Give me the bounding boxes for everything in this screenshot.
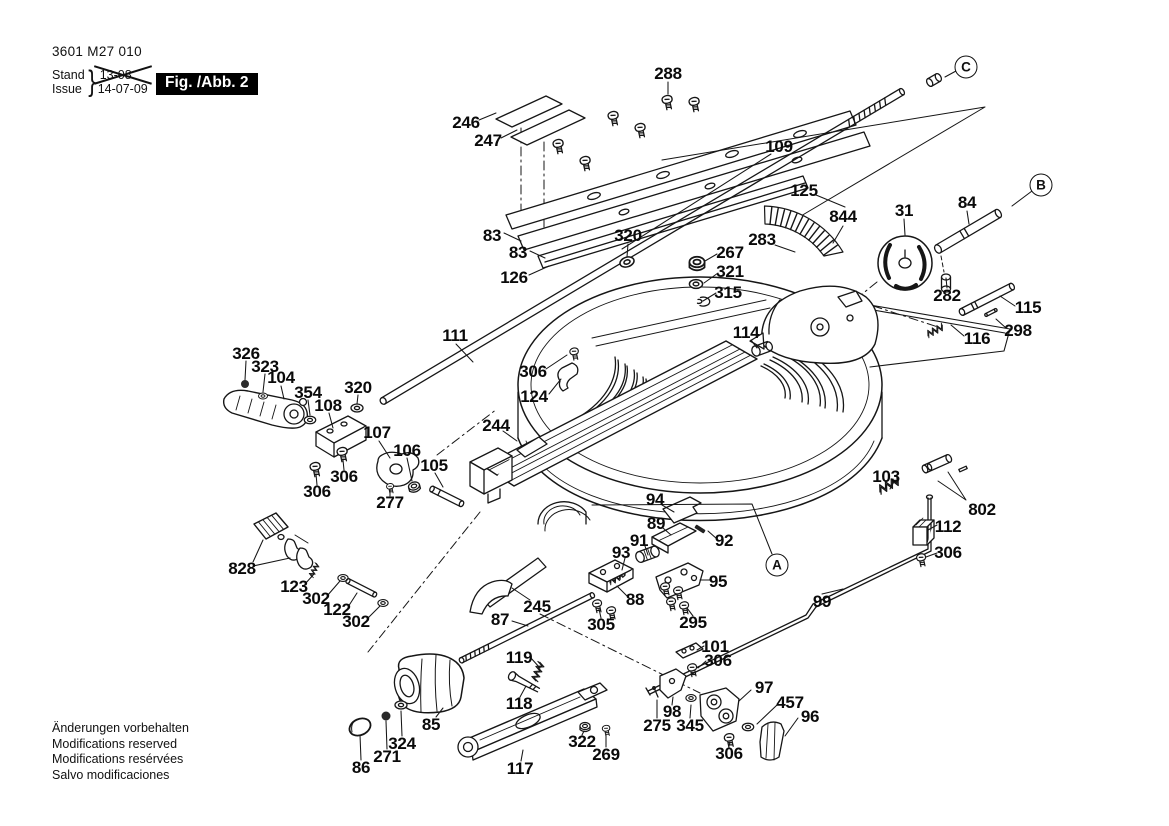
callout-89: 89 [647, 514, 665, 534]
callout-126: 126 [500, 268, 527, 288]
callout-320: 320 [344, 378, 371, 398]
callout-106: 106 [393, 441, 420, 461]
ref-marker-A: A [766, 554, 789, 577]
callout-277: 277 [376, 493, 403, 513]
callout-283: 283 [748, 230, 775, 250]
callout-94: 94 [646, 490, 664, 510]
callout-105: 105 [420, 456, 447, 476]
callout-92: 92 [715, 531, 733, 551]
callout-layer: 2882462471098383126320125844283267321315… [0, 0, 1169, 826]
callout-119: 119 [506, 648, 533, 668]
callout-117: 117 [507, 759, 534, 779]
callout-246: 246 [452, 113, 479, 133]
callout-271: 271 [373, 747, 400, 767]
callout-118: 118 [506, 694, 533, 714]
callout-345: 345 [676, 716, 703, 736]
callout-95: 95 [709, 572, 727, 592]
callout-245: 245 [523, 597, 550, 617]
callout-802: 802 [968, 500, 995, 520]
parts-diagram-page: 3601 M27 010 Stand Issue } 13-08 14-07-0… [0, 0, 1169, 826]
callout-247: 247 [474, 131, 501, 151]
callout-83: 83 [509, 243, 527, 263]
callout-86: 86 [352, 758, 370, 778]
callout-302: 302 [342, 612, 369, 632]
callout-844: 844 [829, 207, 856, 227]
callout-116: 116 [964, 329, 991, 349]
callout-108: 108 [314, 396, 341, 416]
callout-288: 288 [654, 64, 681, 84]
ref-marker-B: B [1030, 174, 1053, 197]
callout-88: 88 [626, 590, 644, 610]
callout-306: 306 [519, 362, 546, 382]
callout-306: 306 [934, 543, 961, 563]
callout-124: 124 [520, 387, 547, 407]
callout-244: 244 [482, 416, 509, 436]
callout-125: 125 [790, 181, 817, 201]
callout-93: 93 [612, 543, 630, 563]
callout-97: 97 [755, 678, 773, 698]
callout-275: 275 [643, 716, 670, 736]
callout-828: 828 [228, 559, 255, 579]
callout-109: 109 [765, 137, 792, 157]
callout-104: 104 [267, 368, 294, 388]
callout-91: 91 [630, 531, 648, 551]
callout-269: 269 [592, 745, 619, 765]
callout-306: 306 [330, 467, 357, 487]
ref-marker-C: C [955, 56, 978, 79]
callout-114: 114 [733, 323, 760, 343]
callout-315: 315 [714, 283, 741, 303]
callout-295: 295 [679, 613, 706, 633]
callout-85: 85 [422, 715, 440, 735]
callout-306: 306 [303, 482, 330, 502]
callout-96: 96 [801, 707, 819, 727]
callout-306: 306 [715, 744, 742, 764]
callout-320: 320 [614, 226, 641, 246]
callout-83: 83 [483, 226, 501, 246]
callout-457: 457 [776, 693, 803, 713]
callout-31: 31 [895, 201, 913, 221]
callout-282: 282 [933, 286, 960, 306]
callout-112: 112 [935, 517, 962, 537]
callout-267: 267 [716, 243, 743, 263]
callout-99: 99 [813, 592, 831, 612]
callout-107: 107 [363, 423, 390, 443]
callout-87: 87 [491, 610, 509, 630]
callout-111: 111 [442, 326, 468, 346]
callout-321: 321 [716, 262, 743, 282]
callout-115: 115 [1015, 298, 1042, 318]
callout-103: 103 [872, 467, 899, 487]
callout-84: 84 [958, 193, 976, 213]
callout-306: 306 [704, 651, 731, 671]
callout-298: 298 [1004, 321, 1031, 341]
callout-305: 305 [587, 615, 614, 635]
